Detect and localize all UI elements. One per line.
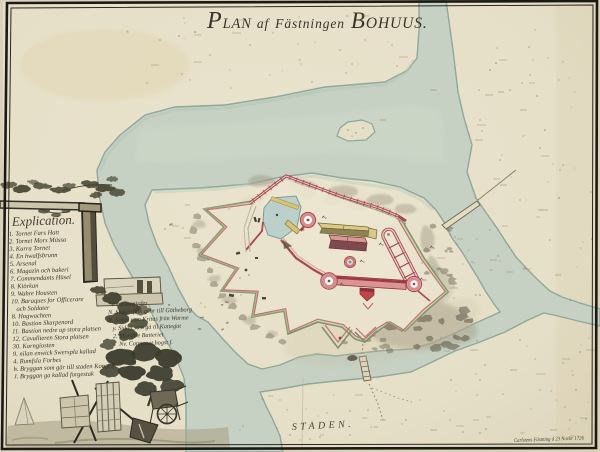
svg-text:Explication.: Explication.: [11, 212, 76, 229]
svg-text:Inforsvagirdes: Inforsvagirdes: [111, 300, 149, 308]
